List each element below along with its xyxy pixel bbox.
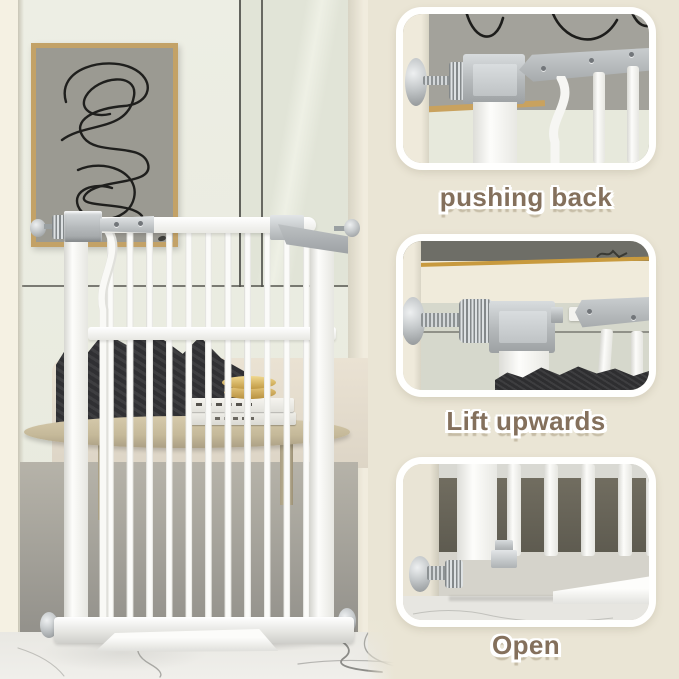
gate-bar: [581, 464, 595, 556]
artist-signature: [595, 245, 631, 261]
safety-gate: [0, 0, 420, 679]
gate-wavy-bar: [92, 228, 130, 634]
marble-vein: [403, 596, 649, 620]
cream-wall-band: [403, 261, 649, 303]
screw: [114, 222, 119, 227]
product-instruction-image: pushing back Li: [0, 0, 679, 679]
screw: [631, 315, 636, 320]
gate-post: [473, 102, 517, 163]
pressure-knob: [459, 299, 493, 343]
wavy-gate-bar: [539, 76, 579, 166]
latch-block-base: [491, 550, 517, 568]
step-card-lift-upwards: [396, 234, 656, 397]
gate-post: [457, 464, 497, 560]
wall-mount-disc: [344, 219, 360, 237]
step-photo-lift-upwards: [403, 241, 649, 390]
screw: [589, 58, 594, 63]
gate-right-post: [310, 236, 334, 640]
left-latch-housing: [64, 211, 102, 242]
step-card-open: [396, 457, 656, 627]
pressure-knob: [445, 560, 463, 588]
step-photo-open: [403, 464, 649, 620]
step-card-pushing-back: [396, 7, 656, 170]
threaded-bolt: [421, 313, 463, 327]
step-caption-open: Open: [392, 630, 660, 661]
latch-tab: [551, 307, 563, 323]
step-caption-lift-upwards: Lift upwards: [392, 406, 660, 437]
screw: [138, 221, 143, 226]
latch-face: [473, 64, 517, 96]
gate-bar: [646, 464, 656, 556]
gate-mid-rail: [88, 327, 336, 340]
gate-left-post: [64, 236, 88, 642]
step-caption-pushing-back: pushing back: [392, 182, 660, 213]
screw: [587, 309, 592, 314]
screw: [541, 66, 546, 71]
latch-face: [499, 311, 547, 343]
screw: [629, 52, 634, 57]
gate-bar: [627, 66, 639, 163]
left-latch-handle: [100, 216, 154, 233]
gate-bar: [593, 72, 605, 163]
lower-wall: [403, 110, 649, 163]
gate-bar: [544, 464, 558, 556]
gate-bar: [618, 464, 632, 556]
step-photo-pushing-back: [403, 14, 649, 163]
